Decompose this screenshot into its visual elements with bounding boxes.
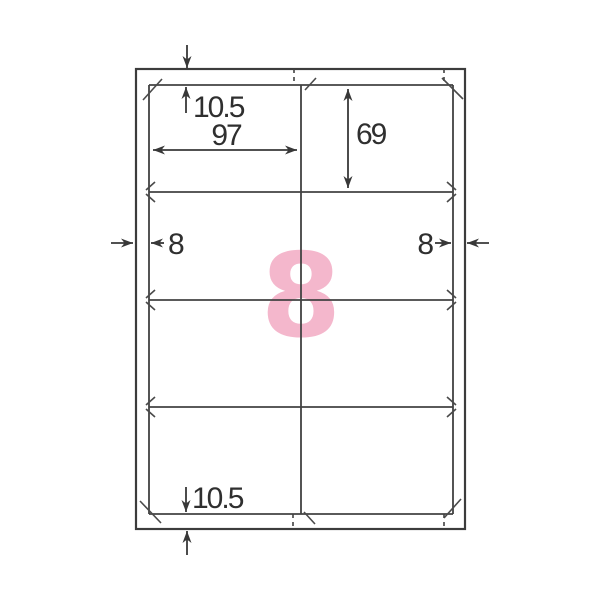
- bottom-margin-value: 10.5: [192, 482, 244, 515]
- corner-mark-bottom-left: [140, 501, 161, 523]
- dimension-label-width: 97: [153, 119, 297, 152]
- dimension-bottom-margin: 10.5: [186, 482, 244, 555]
- label-template-diagram: 8 10.5: [0, 0, 600, 600]
- label-height-value: 69: [356, 118, 387, 151]
- dimension-label-height: 69: [348, 89, 387, 188]
- label-width-value: 97: [211, 119, 242, 152]
- dimension-left-margin: 8: [111, 228, 184, 261]
- right-margin-value: 8: [417, 228, 433, 261]
- corner-mark-top-left: [143, 79, 162, 100]
- label-sheet-drawing: 8 10.5: [0, 0, 600, 600]
- corner-mark-top-center: [305, 78, 316, 90]
- left-margin-value: 8: [168, 228, 184, 261]
